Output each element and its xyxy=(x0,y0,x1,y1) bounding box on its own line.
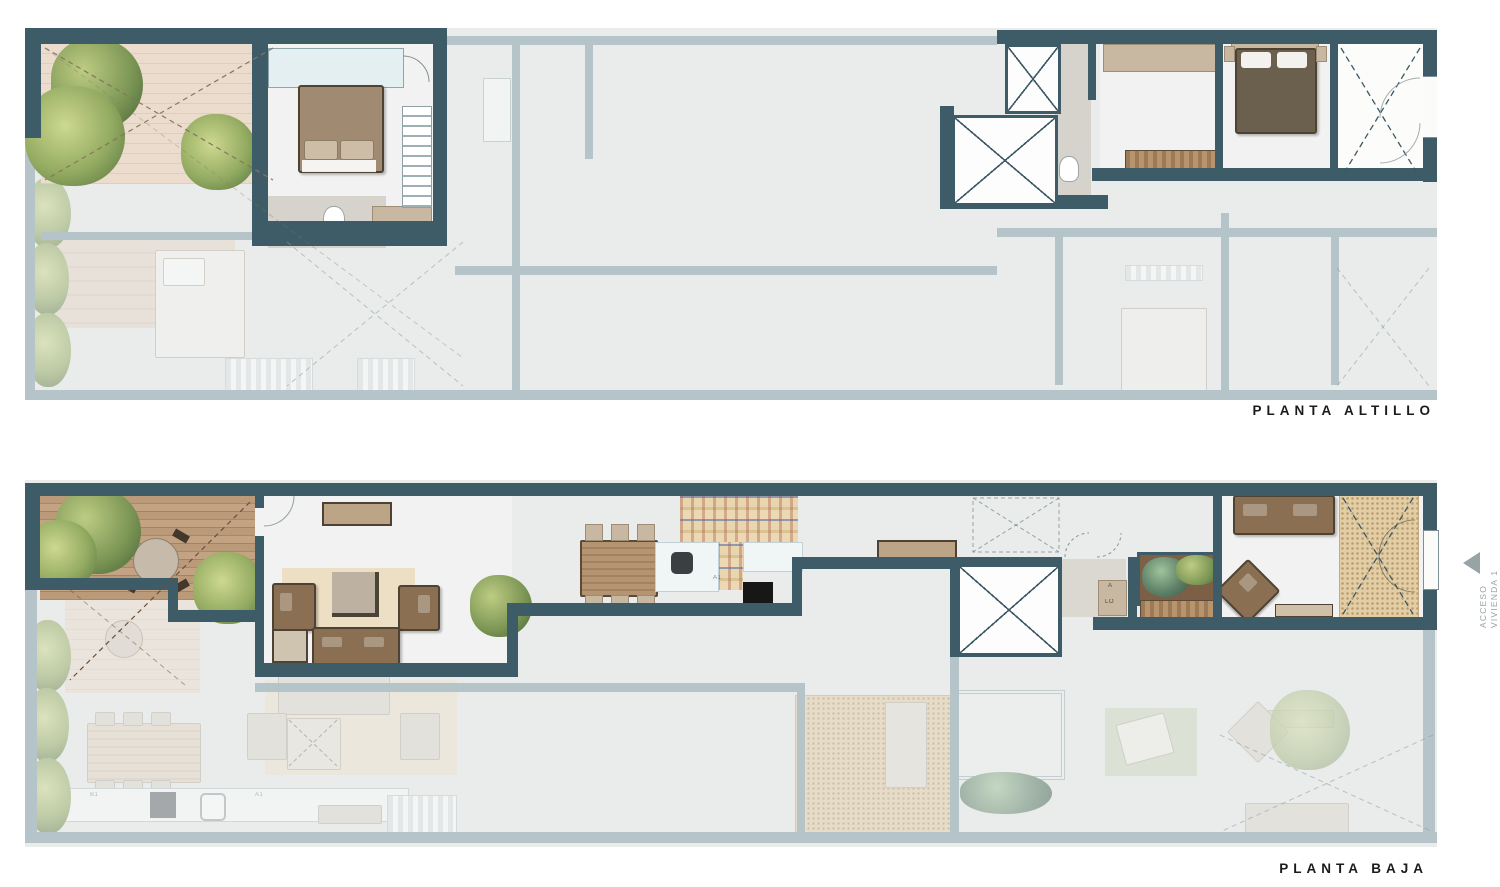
wall-segment xyxy=(252,221,447,246)
elevator-shaft xyxy=(952,115,1058,206)
faded-stairs xyxy=(387,795,457,837)
faded-wall-segment xyxy=(950,627,959,833)
faded-sun-lounger xyxy=(885,702,927,788)
faded-wall-segment xyxy=(512,41,520,391)
faded-pillow xyxy=(163,258,205,286)
plan-label-baja: PLANTA BAJA xyxy=(1168,861,1428,876)
faded-tv-bench xyxy=(318,805,382,824)
tv-console xyxy=(1275,604,1333,617)
kitchen-tiles xyxy=(717,542,743,590)
void-cross xyxy=(1005,44,1061,114)
faded-chair xyxy=(95,712,115,726)
faded-wall-segment xyxy=(1055,237,1063,385)
wardrobe xyxy=(1103,44,1223,72)
faded-wall-segment xyxy=(447,36,997,45)
faded-wall-segment xyxy=(25,138,35,390)
faded-wall-segment xyxy=(25,832,1437,843)
faded-bed xyxy=(1121,308,1207,392)
void-closet xyxy=(1338,44,1423,181)
access-line1: ACCESO xyxy=(1478,570,1489,628)
faded-wall-segment xyxy=(25,390,1437,400)
nightstand xyxy=(1224,46,1235,62)
faded-armchair xyxy=(247,713,287,760)
faded-wall-segment xyxy=(997,228,1437,237)
elevator-shaft xyxy=(957,564,1061,656)
wall-segment xyxy=(252,41,268,226)
side-table xyxy=(272,629,308,663)
wall-segment xyxy=(1128,557,1137,617)
sofa xyxy=(312,627,400,667)
access-line2: VIVIENDA 1 xyxy=(1489,570,1500,628)
sideboard xyxy=(322,502,392,526)
faded-wall-segment xyxy=(1423,630,1435,832)
faded-wall-segment xyxy=(585,41,593,159)
wall-segment xyxy=(1092,168,1437,181)
faded-tree xyxy=(1270,690,1350,770)
door-gap xyxy=(255,508,264,536)
dining-chair xyxy=(637,524,655,541)
faded-wall-segment xyxy=(797,683,805,833)
bed-pillow xyxy=(304,140,338,160)
faded-wall-segment xyxy=(455,266,997,275)
entry-mat xyxy=(1339,495,1419,619)
wall-segment xyxy=(1093,617,1437,630)
wall-segment xyxy=(512,603,800,616)
loft-ladder xyxy=(402,106,432,208)
bed-sheet xyxy=(302,160,376,172)
unit-tag-a1: A1 xyxy=(713,575,721,581)
armchair xyxy=(398,585,440,631)
shrub-plant xyxy=(181,114,257,190)
bed-pillow xyxy=(1277,52,1307,68)
faded-stairs xyxy=(225,358,313,392)
wall-segment xyxy=(1088,42,1096,100)
dining-chair xyxy=(585,524,603,541)
wall-segment xyxy=(1215,42,1223,170)
plan-label-altillo: PLANTA ALTILLO xyxy=(1175,403,1435,418)
faded-table xyxy=(287,718,341,770)
faded-round-table xyxy=(105,620,143,658)
floorplan-altillo xyxy=(25,28,1437,400)
wall-segment xyxy=(797,557,955,569)
wall-segment xyxy=(1330,42,1338,170)
dining-table xyxy=(580,540,658,597)
faded-wall-segment xyxy=(1221,213,1229,390)
nightstand xyxy=(1316,46,1327,62)
faded-stairs xyxy=(1125,265,1203,281)
kitchen-tiles xyxy=(680,496,798,542)
bed-pillow xyxy=(1241,52,1271,68)
faded-stairs xyxy=(357,358,415,392)
floorplan-baja: B1 A1 A1 A LO xyxy=(25,480,1437,847)
faded-stove xyxy=(150,792,176,818)
faded-wall-segment xyxy=(25,583,37,833)
entry-door-leaf xyxy=(1423,530,1439,590)
coffee-table xyxy=(332,572,379,617)
faded-unit-tag-a1: A1 xyxy=(255,792,263,798)
faded-wall-segment xyxy=(255,683,805,692)
wall-segment xyxy=(25,28,437,44)
faded-chair xyxy=(151,712,171,726)
faded-closet xyxy=(483,78,511,142)
sofa xyxy=(1233,495,1335,535)
dining-chair xyxy=(611,524,629,541)
bed-pillow xyxy=(340,140,374,160)
faded-unit-tag-b1: B1 xyxy=(90,792,98,798)
faded-chair xyxy=(123,712,143,726)
faded-tile-terrace xyxy=(795,695,953,835)
toilet xyxy=(1059,156,1079,182)
utility-cabinet: A LO xyxy=(1098,580,1127,616)
kitchen-sink xyxy=(671,552,693,574)
wall-segment xyxy=(25,28,41,138)
faded-armchair xyxy=(400,713,440,760)
entry-door-gap xyxy=(1423,76,1437,138)
page: { "page": {"background": "#ffffff", "wid… xyxy=(0,0,1500,887)
access-annotation: ACCESO VIVIENDA 1 xyxy=(1478,570,1500,628)
faded-dining-table xyxy=(87,723,201,783)
faded-agave-plants xyxy=(960,772,1052,814)
tiny-label-lo: LO xyxy=(1105,599,1114,605)
wall-segment xyxy=(25,483,40,583)
skylight xyxy=(268,48,404,88)
stove xyxy=(743,582,773,604)
tiny-label-a: A xyxy=(1108,583,1113,589)
wall-segment xyxy=(25,578,178,590)
faded-sink xyxy=(200,793,226,821)
wall-segment xyxy=(168,610,260,622)
wall-segment xyxy=(25,483,1437,496)
wall-segment xyxy=(1213,493,1222,617)
armchair xyxy=(272,583,316,631)
faded-wall-segment xyxy=(1331,237,1339,385)
faded-courtyard xyxy=(955,690,1065,780)
wall-segment xyxy=(433,28,447,246)
wall-segment xyxy=(255,663,513,677)
